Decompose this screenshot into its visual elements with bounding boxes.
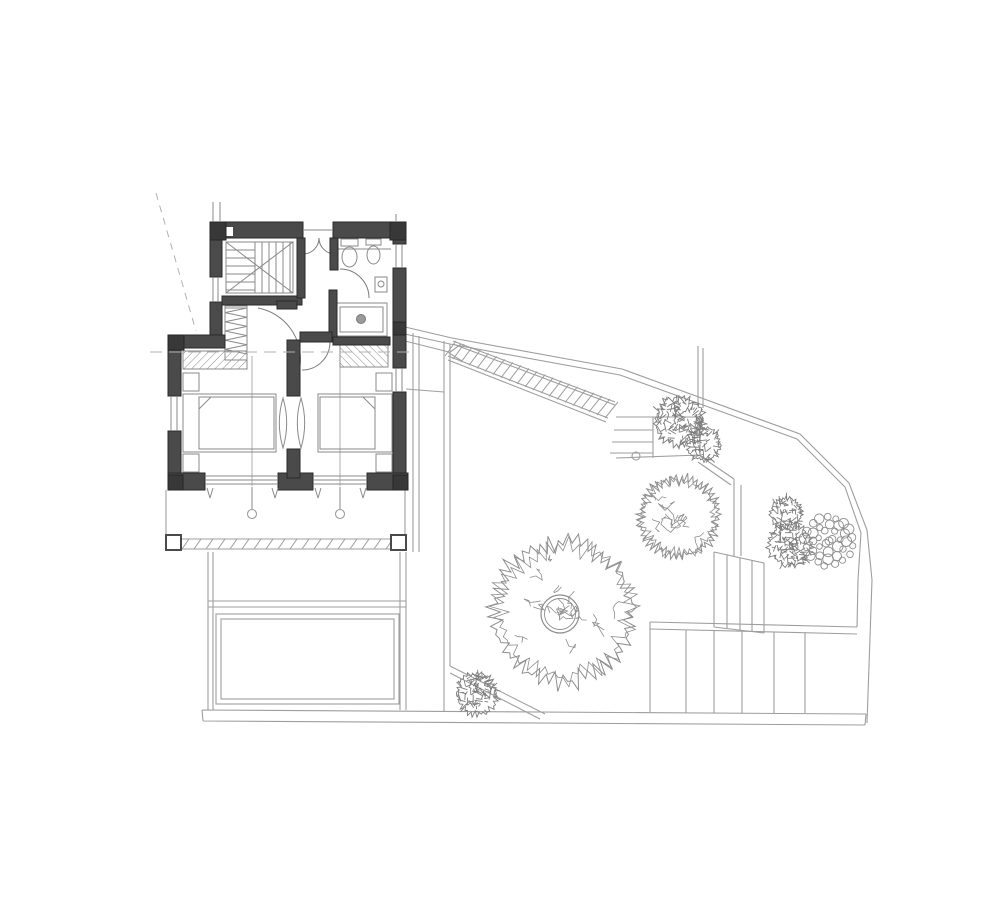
reference-lines: [150, 193, 412, 352]
wardrobe-left-bedroom: [183, 351, 247, 369]
closet-hall: [225, 306, 247, 360]
door-leaf-symbol: [297, 398, 305, 448]
canopy-outline: [486, 534, 640, 692]
survey-ticks: [213, 202, 396, 222]
dense-bush: [686, 422, 721, 463]
dense-bush: [766, 519, 815, 569]
shower-tray: [336, 303, 387, 336]
nightstand: [376, 454, 392, 472]
garden-mid-stair: [610, 417, 741, 556]
balcony-post: [391, 535, 406, 550]
trees: [457, 395, 856, 717]
floor-plan-svg: [0, 0, 985, 901]
bed-left: [183, 373, 276, 472]
toilet-bowl: [342, 247, 357, 267]
nightstand: [183, 373, 199, 391]
balcony-post: [166, 535, 181, 550]
toilet-tank: [341, 239, 358, 246]
ground-strip: [202, 710, 866, 725]
garden-long-stair: [445, 341, 618, 422]
bed-right: [318, 373, 392, 472]
dense-bush: [653, 395, 707, 449]
shower-drain: [357, 315, 366, 324]
dense-bush: [769, 493, 804, 531]
nightstand: [376, 373, 392, 391]
canopy-outline: [636, 473, 721, 560]
bidet-tank: [366, 239, 381, 245]
building-walls: [168, 222, 408, 498]
stairwell: [226, 242, 293, 293]
balcony: [166, 487, 406, 550]
bidet-bowl: [367, 246, 380, 264]
terrace-steps: [650, 552, 857, 713]
nightstand: [183, 454, 199, 472]
door-arcs: [258, 238, 369, 370]
building: [168, 202, 408, 498]
balcony-hatch: [170, 539, 405, 549]
bathroom-fixtures: [336, 239, 391, 336]
floor-plan-canvas: [0, 0, 985, 901]
shower-column: [375, 277, 387, 292]
pebble-tree: [799, 513, 856, 569]
wardrobe-right-bedroom: [340, 345, 388, 367]
dense-bush: [457, 670, 501, 717]
deck: [208, 552, 406, 710]
door-leaf-symbol: [279, 398, 287, 448]
garden-boundary: [405, 327, 872, 723]
